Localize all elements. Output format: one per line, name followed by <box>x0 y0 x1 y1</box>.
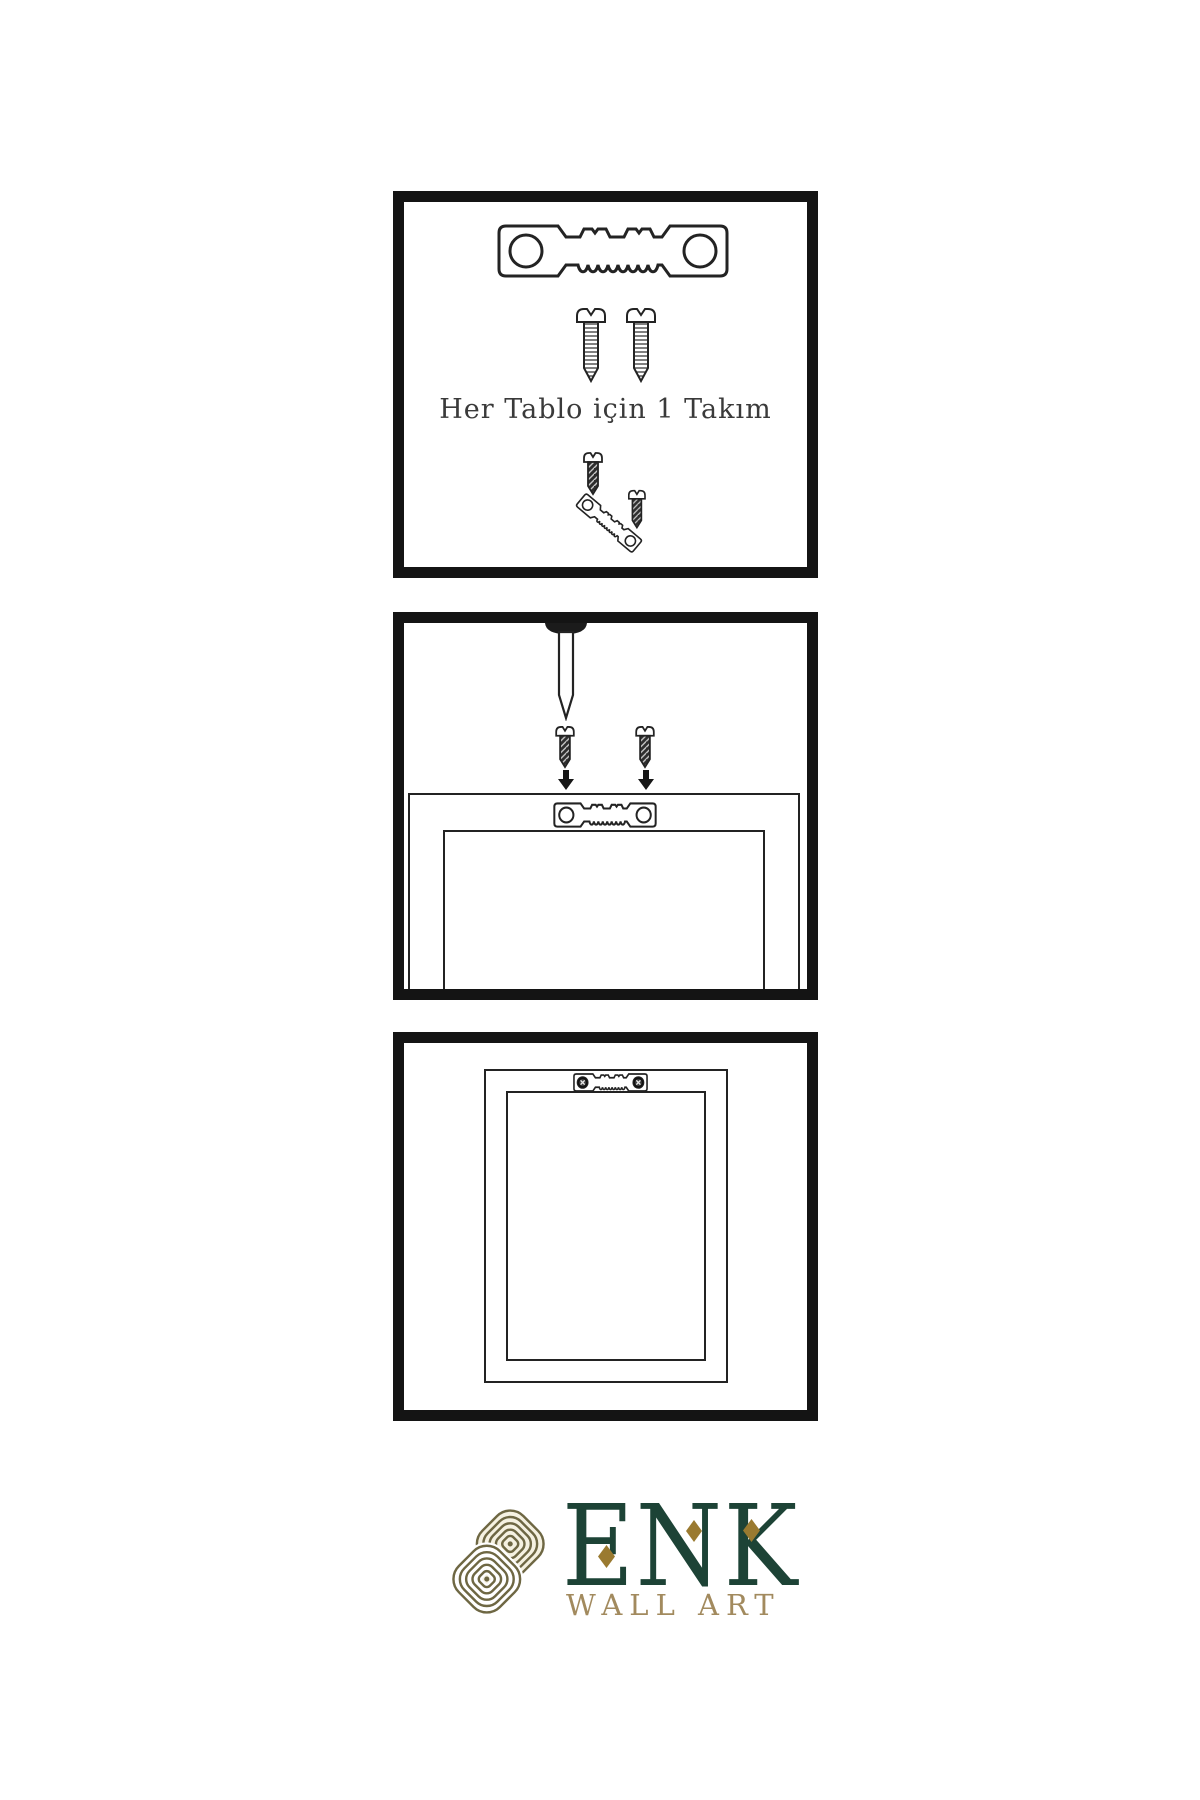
knot-logo-icon <box>436 1499 561 1624</box>
diamond-accent-icon <box>598 1545 615 1568</box>
mounted-sawtooth-hanger-icon <box>573 1073 648 1092</box>
frame-back-inner-edge <box>506 1091 706 1361</box>
sawtooth-hanger-icon <box>496 223 730 279</box>
step-1-panel: Her Tablo için 1 Takım <box>393 191 818 578</box>
sawtooth-hanger-icon <box>553 802 657 828</box>
diamond-accent-icon <box>686 1520 702 1542</box>
down-arrow-icon <box>638 770 654 790</box>
kit-caption: Her Tablo için 1 Takım <box>404 394 807 425</box>
screw-icon <box>624 306 658 384</box>
wall-nail-icon <box>545 623 587 721</box>
screw-icon <box>574 306 608 384</box>
step-3-panel <box>393 1032 818 1421</box>
step-2-panel <box>393 612 818 1000</box>
product-instruction-sheet: { "page": {"width": 1200, "height": 1800… <box>0 0 1200 1800</box>
diamond-accent-icon <box>743 1519 760 1542</box>
down-arrow-icon <box>558 770 574 790</box>
dark-screw-icon <box>554 724 576 769</box>
frame-back-inner-edge <box>443 830 765 989</box>
brand-tagline: WALL ART <box>566 1591 781 1620</box>
screw-and-angled-hanger-icon <box>570 448 662 556</box>
dark-screw-icon <box>634 724 656 769</box>
